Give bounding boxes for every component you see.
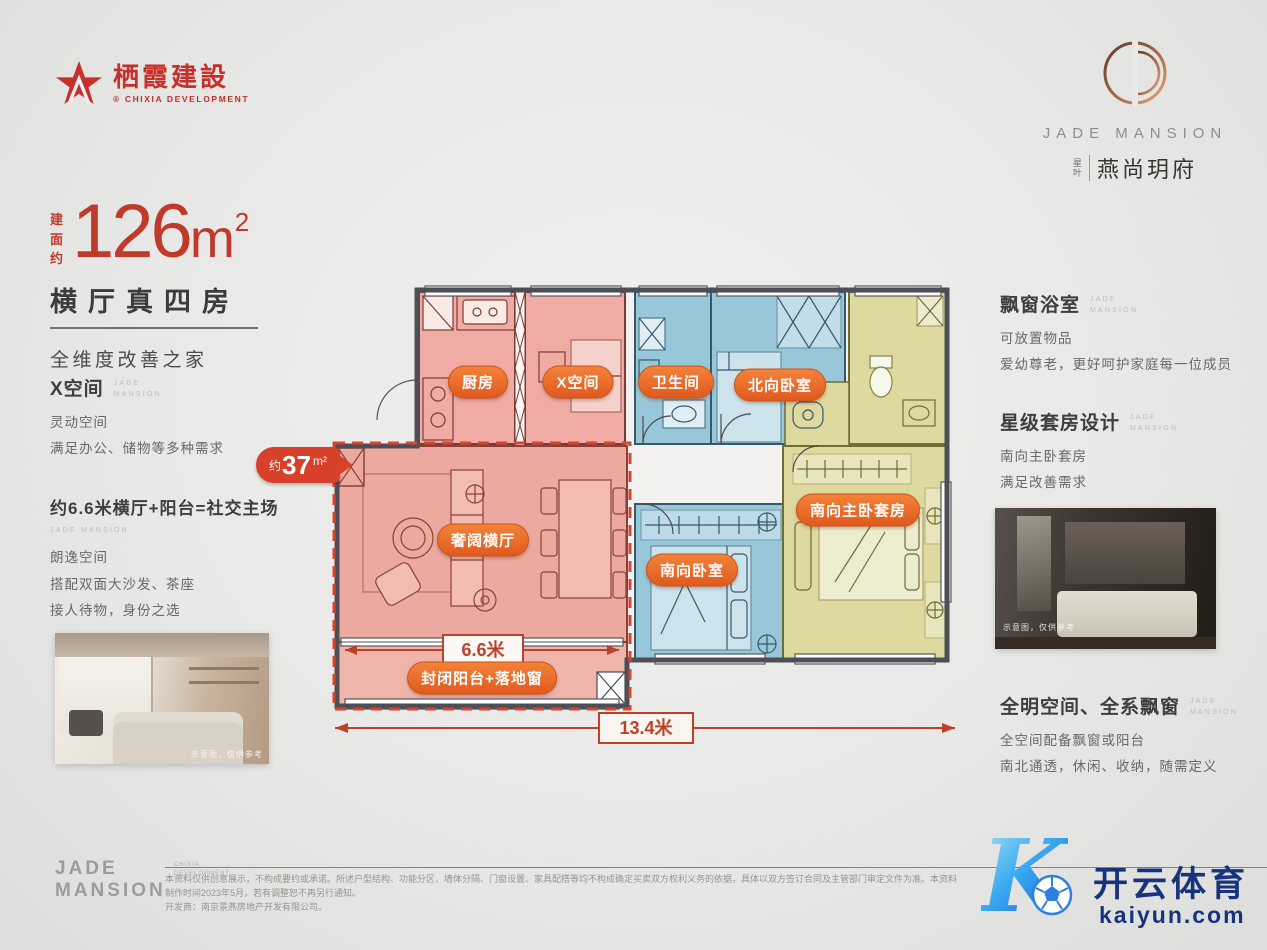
- section-line: 接人待物，身份之选: [50, 598, 330, 624]
- brand-mini-line2: MANSION: [1130, 423, 1178, 434]
- photo-window-light: [1017, 516, 1051, 611]
- living-room-photo: 示意图，仅供参考: [55, 633, 269, 764]
- section-living-social: 约6.6米横厅+阳台=社交主场 JADE MANSION 朗逸空间 搭配双面大沙…: [50, 494, 330, 624]
- photo-headboard-wall: [1065, 522, 1185, 584]
- section-line: 可放置物品: [1000, 326, 1240, 352]
- area-37-badge: 约 37 m²: [256, 447, 340, 483]
- section-line: 满足改善需求: [1000, 470, 1240, 496]
- chixia-sub: ® CHIXIA DEVELOPMENT: [113, 94, 249, 104]
- headline-block: 建面约 126m2 横厅真四房 全维度改善之家: [50, 198, 258, 372]
- footer-logo-sub1: CHIXIA: [174, 861, 230, 870]
- section-title: 飘窗浴室: [1000, 290, 1080, 317]
- area-badge-prefix: 约: [269, 457, 281, 474]
- disclaimer: 本资料仅供创意展示，不构成要约或承诺。所述户型结构、功能分区、墙体分隔、门窗设置…: [165, 873, 960, 915]
- room-label-master-suite: 南向主卧套房: [796, 494, 920, 527]
- jade-mansion-wordmark: JADE MANSION: [1040, 125, 1230, 142]
- chixia-name: 栖霞建設: [113, 64, 249, 90]
- room-label-south-bedroom: 南向卧室: [646, 554, 738, 587]
- project-tag-line2: 叶: [1073, 168, 1082, 178]
- footer-logo-line2: MANSION: [55, 880, 166, 902]
- photo-shelf: [189, 667, 259, 670]
- brand-mini: JADE MANSION: [1130, 412, 1178, 434]
- room-label-kitchen: 厨房: [448, 366, 508, 399]
- bedroom-photo: 示意图，仅供参考: [995, 508, 1216, 649]
- brand-mini-line1: JADE: [1130, 412, 1178, 423]
- disclaimer-line1: 本资料仅供创意展示，不构成要约或承诺。所述户型结构、功能分区、墙体分隔、门窗设置…: [165, 873, 960, 901]
- photo-floor: [995, 637, 1216, 649]
- section-title: 约6.6米横厅+阳台=社交主场: [50, 494, 330, 519]
- disclaimer-line2: 开发商：南京景燕房地产开发有限公司。: [165, 901, 960, 915]
- brand-mini: JADE MANSION: [114, 378, 162, 400]
- headline-title: 横厅真四房: [50, 280, 258, 329]
- brand-mini-line2: MANSION: [1090, 305, 1138, 316]
- section-line: 朗逸空间: [50, 545, 330, 571]
- brand-mini-line2: MANSION: [114, 389, 162, 400]
- dim-width-label: 6.6米: [461, 639, 505, 660]
- room-label-living: 奢阔横厅: [437, 524, 529, 557]
- section-line: 全空间配备飘窗或阳台: [1000, 728, 1250, 754]
- brand-mini-line2: MANSION: [81, 527, 129, 534]
- jade-mansion-logo-block: JADE MANSION 星 叶 燕尚玥府: [1040, 36, 1230, 184]
- area-superscript: 2: [235, 207, 249, 237]
- area-prefix: 建面约: [50, 210, 66, 269]
- photo-ceiling: [55, 633, 269, 657]
- section-line: 搭配双面大沙发、茶座: [50, 572, 330, 598]
- divider: [1089, 155, 1090, 181]
- football-icon: [1031, 874, 1073, 916]
- brand-mini-line1: JADE: [1190, 696, 1238, 707]
- project-tag-line1: 星: [1073, 158, 1082, 168]
- kaiyun-domain: kaiyun.com: [1099, 902, 1246, 929]
- photo-caption: 示意图，仅供参考: [1003, 622, 1075, 633]
- brand-mini-line2: MANSION: [1190, 707, 1238, 718]
- photo-chair: [69, 710, 103, 736]
- poster-canvas: 栖霞建設 ® CHIXIA DEVELOPMENT JADE MANSION 星…: [0, 0, 1267, 950]
- section-bright-space: 全明空间、全系飘窗 JADE MANSION 全空间配备飘窗或阳台 南北通透，休…: [1000, 692, 1250, 781]
- brand-mini-line1: JADE: [114, 378, 162, 389]
- jade-mansion-circle-icon: [1098, 36, 1172, 110]
- project-name-row: 星 叶 燕尚玥府: [1040, 152, 1230, 184]
- project-name: 燕尚玥府: [1097, 152, 1197, 184]
- section-suite-design: 星级套房设计 JADE MANSION 南向主卧套房 满足改善需求: [1000, 408, 1240, 497]
- footer-logo-line1: JADE: [55, 858, 166, 880]
- section-title: 全明空间、全系飘窗: [1000, 692, 1180, 719]
- headline-subtitle: 全维度改善之家: [50, 345, 258, 372]
- kaiyun-watermark: K 开云体育 kaiyun.com: [975, 838, 1267, 950]
- chixia-star-icon: [55, 60, 103, 108]
- section-line: 南向主卧套房: [1000, 444, 1240, 470]
- room-label-balcony: 封闭阳台+落地窗: [407, 662, 557, 695]
- area-number: 126: [72, 189, 190, 274]
- dim-total-label: 13.4米: [619, 717, 673, 738]
- brand-mini-line1: JADE: [50, 527, 77, 534]
- room-label-bathroom: 卫生间: [638, 366, 714, 399]
- brand-mini: JADE MANSION: [50, 525, 330, 536]
- dimension-13-4: 13.4米: [335, 713, 955, 743]
- section-line: 南北通透，休闲、收纳，随需定义: [1000, 754, 1250, 780]
- photo-caption: 示意图，仅供参考: [191, 749, 263, 760]
- section-line: 灵动空间: [50, 410, 310, 436]
- room-label-north-bedroom: 北向卧室: [734, 369, 826, 402]
- project-tag: 星 叶: [1073, 158, 1082, 179]
- section-title: X空间: [50, 374, 104, 401]
- section-title: 星级套房设计: [1000, 408, 1120, 435]
- area-badge-value: 37: [282, 452, 311, 478]
- room-label-x-space: X空间: [542, 366, 613, 399]
- brand-mini-line1: JADE: [1090, 294, 1138, 305]
- area-badge-unit: m²: [313, 454, 327, 468]
- section-line: 爱幼尊老，更好呵护家庭每一位成员: [1000, 352, 1240, 378]
- area-unit: m: [190, 209, 235, 269]
- chixia-logo: 栖霞建設 ® CHIXIA DEVELOPMENT: [55, 60, 249, 108]
- section-bay-bath: 飘窗浴室 JADE MANSION 可放置物品 爱幼尊老，更好呵护家庭每一位成员: [1000, 290, 1240, 379]
- kaiyun-cn-wordmark: 开云体育: [1093, 856, 1249, 907]
- brand-mini: JADE MANSION: [1190, 696, 1238, 718]
- brand-mini: JADE MANSION: [1090, 294, 1138, 316]
- arrow-point-icon: [339, 455, 353, 475]
- photo-bed: [1057, 591, 1197, 637]
